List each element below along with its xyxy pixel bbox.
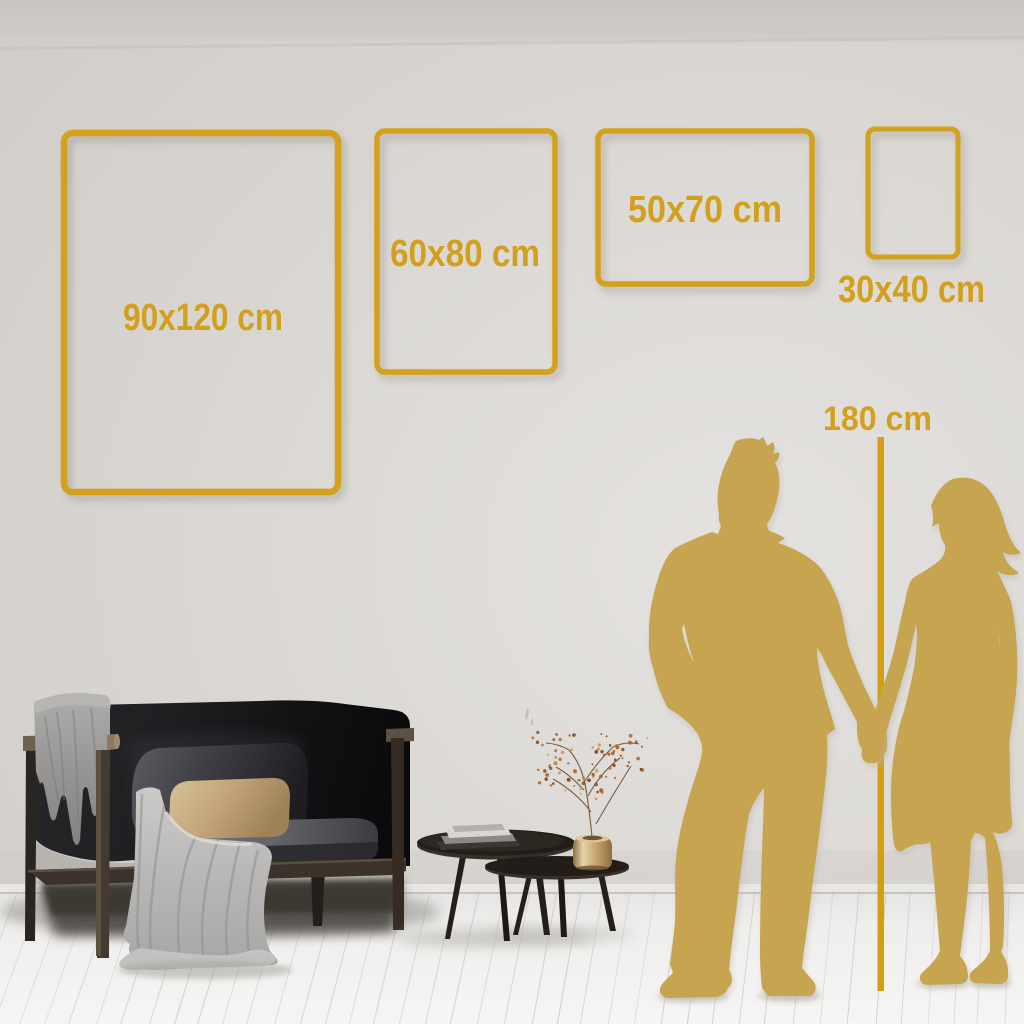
svg-text:50x70 cm: 50x70 cm xyxy=(628,189,782,231)
svg-text:90x120 cm: 90x120 cm xyxy=(123,297,283,339)
svg-text:60x80 cm: 60x80 cm xyxy=(390,233,540,275)
svg-text:30x40 cm: 30x40 cm xyxy=(838,269,985,311)
svg-text:180 cm: 180 cm xyxy=(823,400,932,438)
